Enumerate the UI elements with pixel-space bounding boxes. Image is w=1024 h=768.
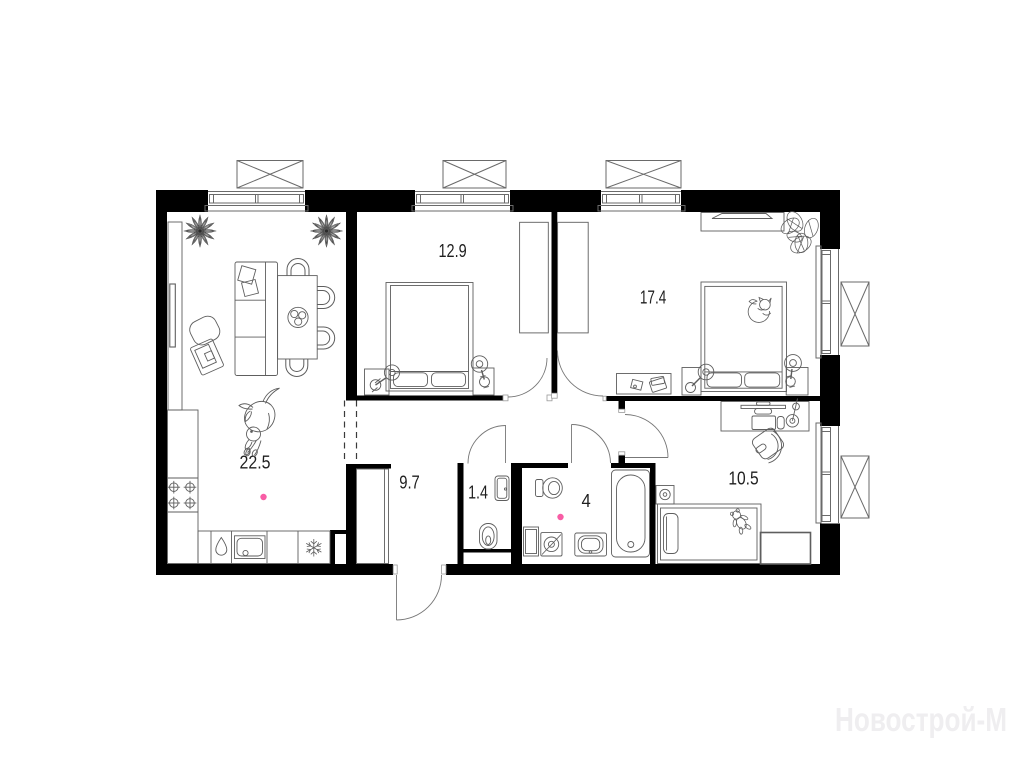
- svg-text:12.9: 12.9: [439, 241, 467, 261]
- svg-text:Новострой-М: Новострой-М: [835, 701, 1007, 738]
- svg-text:17.4: 17.4: [640, 288, 666, 308]
- svg-text:9.7: 9.7: [399, 472, 420, 493]
- svg-text:10.5: 10.5: [728, 468, 758, 488]
- svg-text:4: 4: [582, 490, 592, 511]
- svg-text:1.4: 1.4: [468, 483, 488, 503]
